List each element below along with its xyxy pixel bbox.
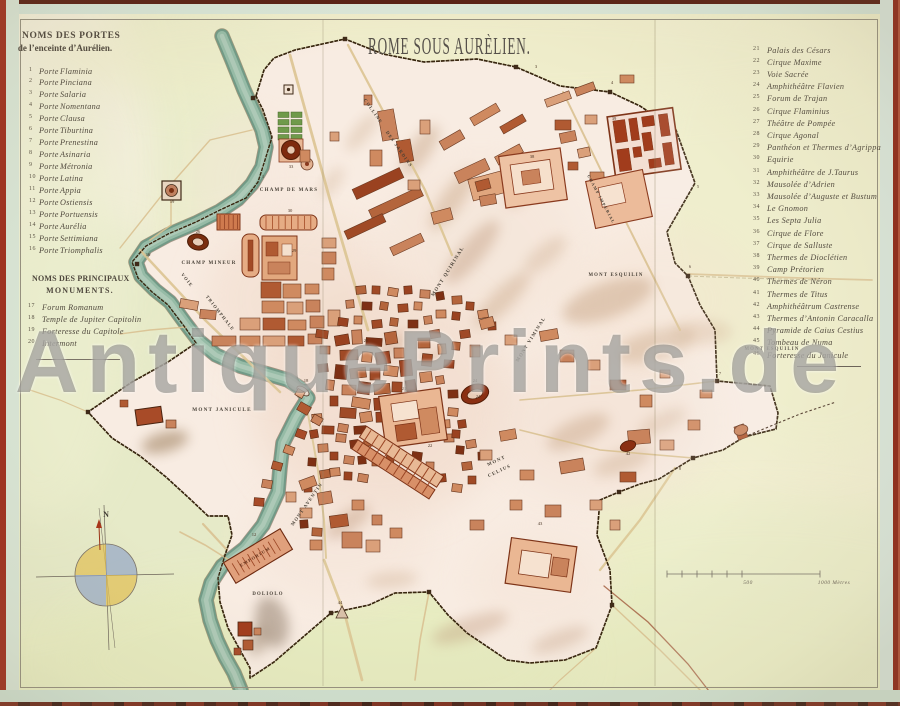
svg-text:DOLIOLO: DOLIOLO xyxy=(252,592,283,597)
svg-text:22: 22 xyxy=(428,443,433,448)
svg-text:12: 12 xyxy=(252,532,257,537)
svg-text:43: 43 xyxy=(538,521,543,526)
svg-text:N: N xyxy=(103,510,109,519)
svg-text:42: 42 xyxy=(626,451,631,456)
svg-text:44: 44 xyxy=(338,600,343,605)
